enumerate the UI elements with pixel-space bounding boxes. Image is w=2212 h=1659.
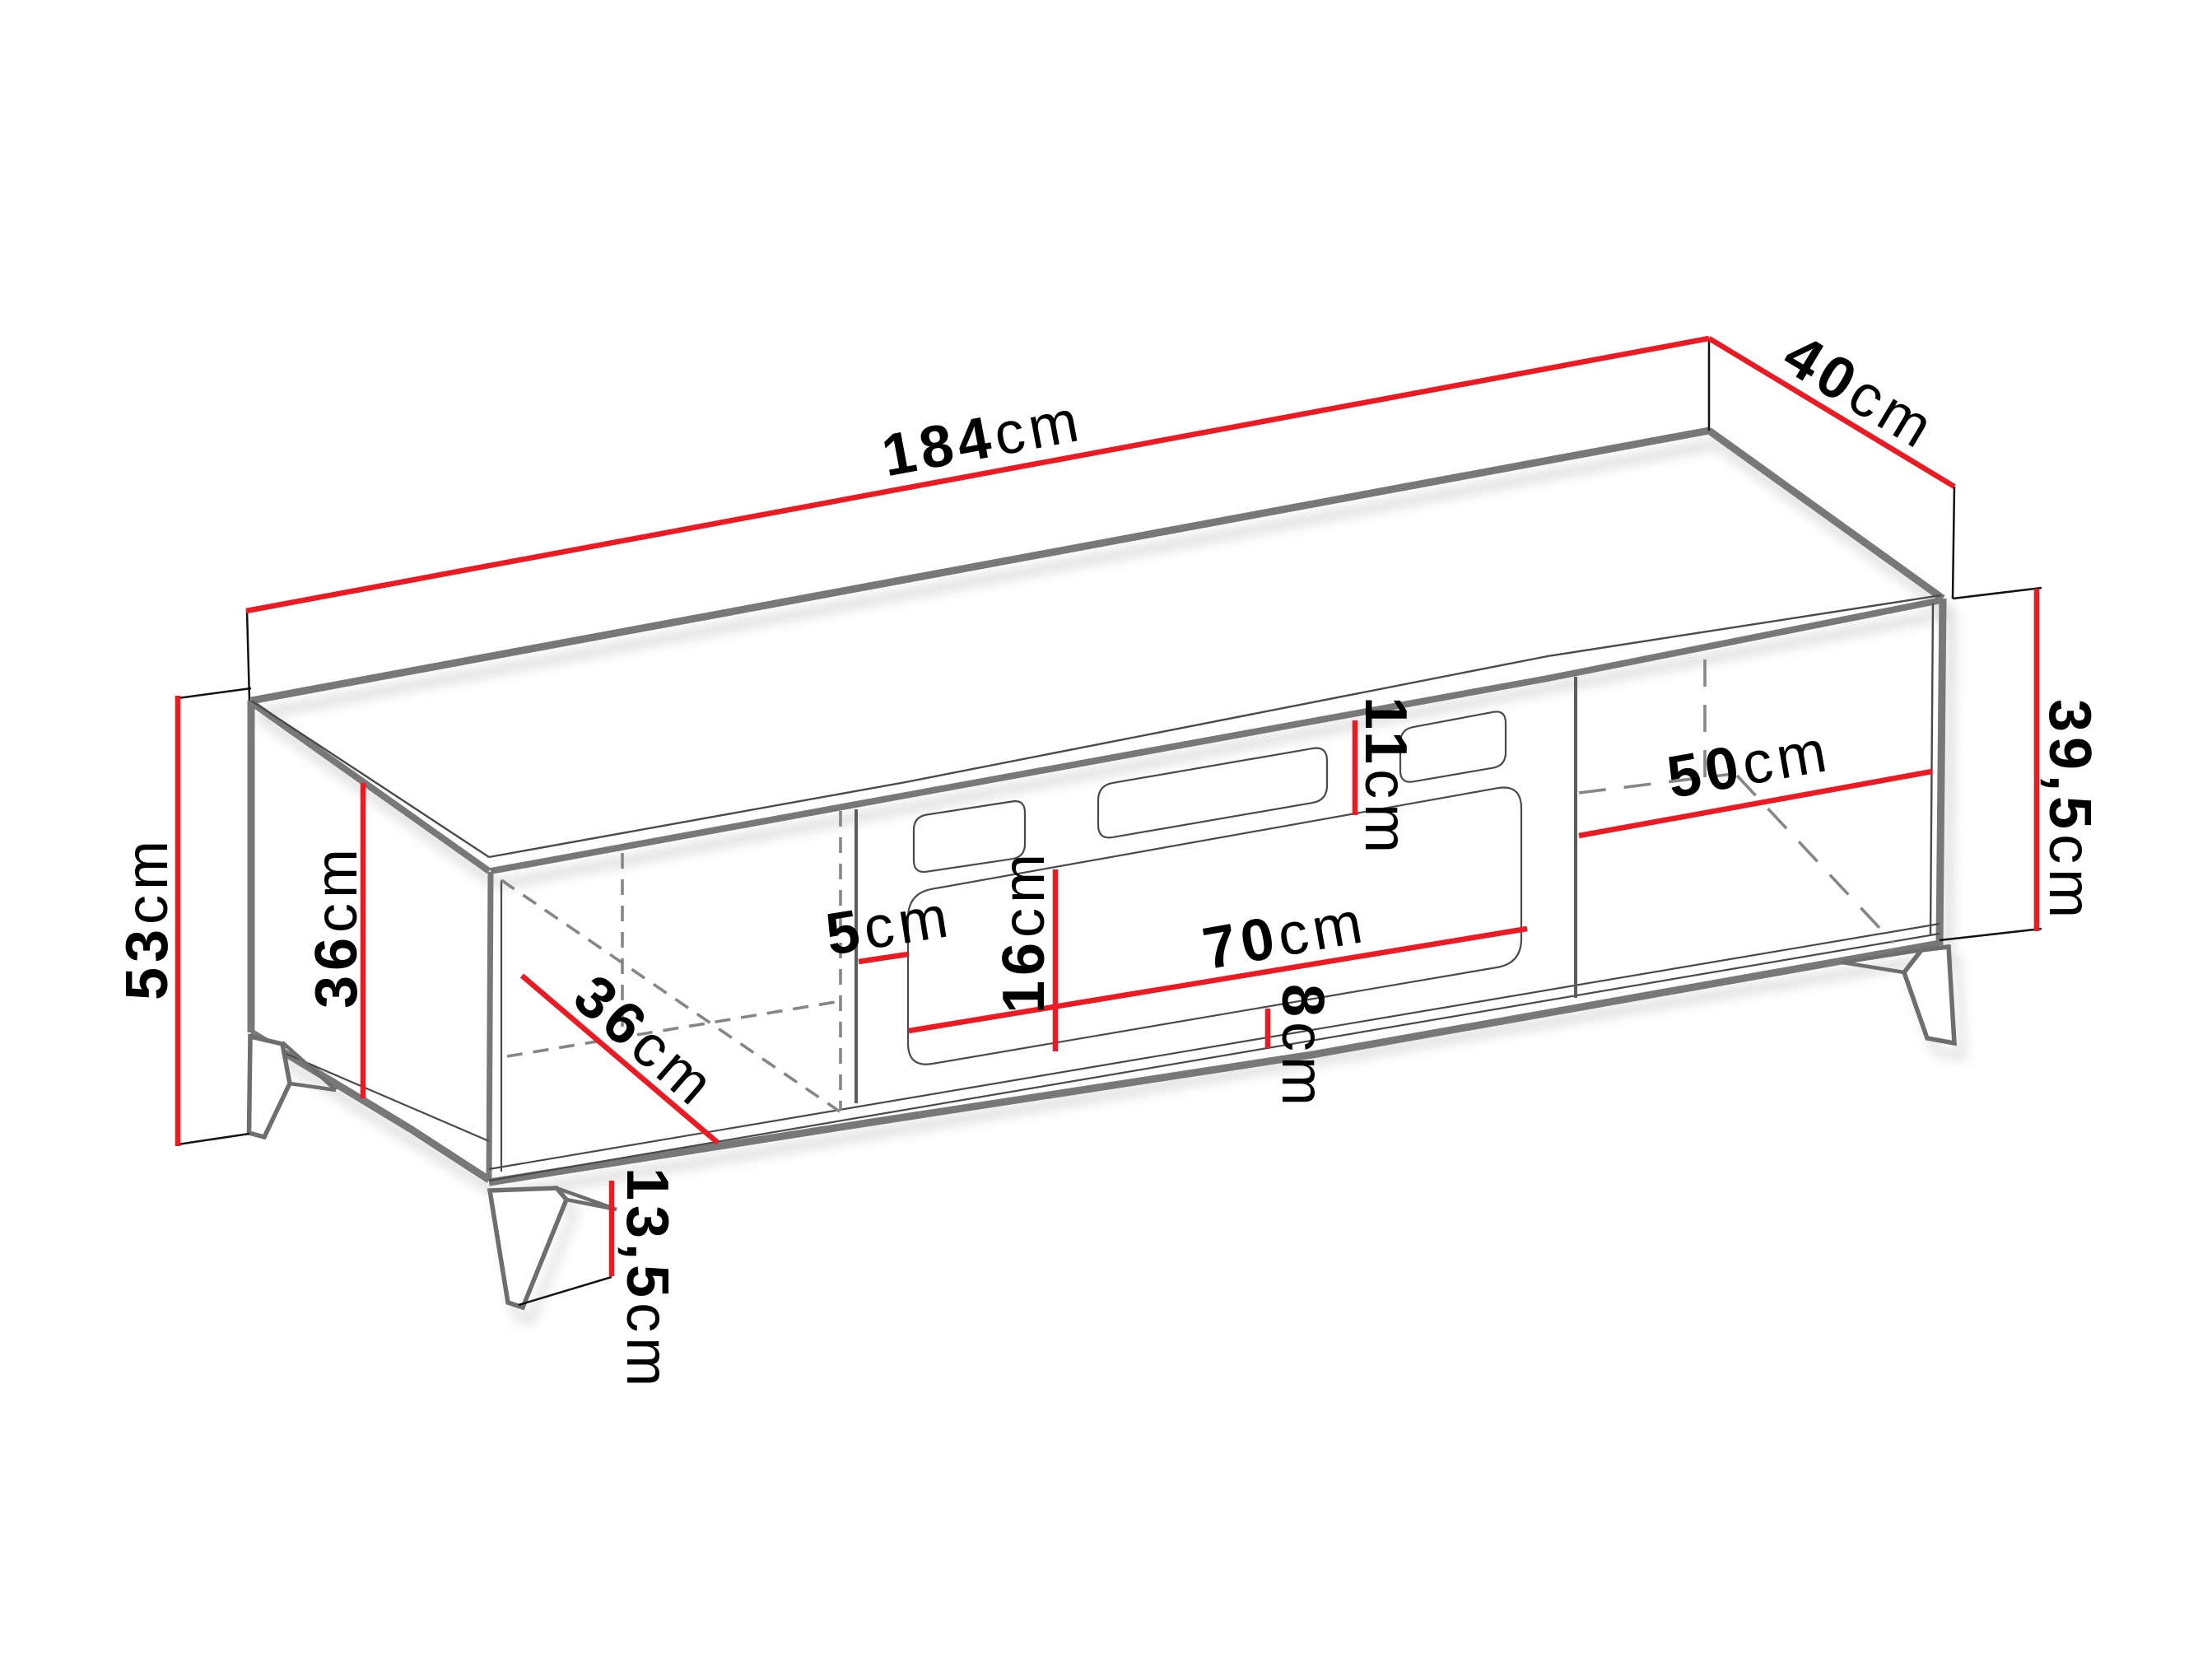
svg-text:39,5cm: 39,5cm [2037, 699, 2103, 923]
svg-text:36cm: 36cm [304, 844, 370, 1009]
svg-text:11cm: 11cm [1353, 697, 1418, 858]
svg-text:8cm: 8cm [1269, 984, 1335, 1111]
svg-text:16cm: 16cm [991, 849, 1057, 1014]
svg-text:53cm: 53cm [114, 836, 180, 1000]
svg-text:13,5cm: 13,5cm [614, 1167, 680, 1391]
